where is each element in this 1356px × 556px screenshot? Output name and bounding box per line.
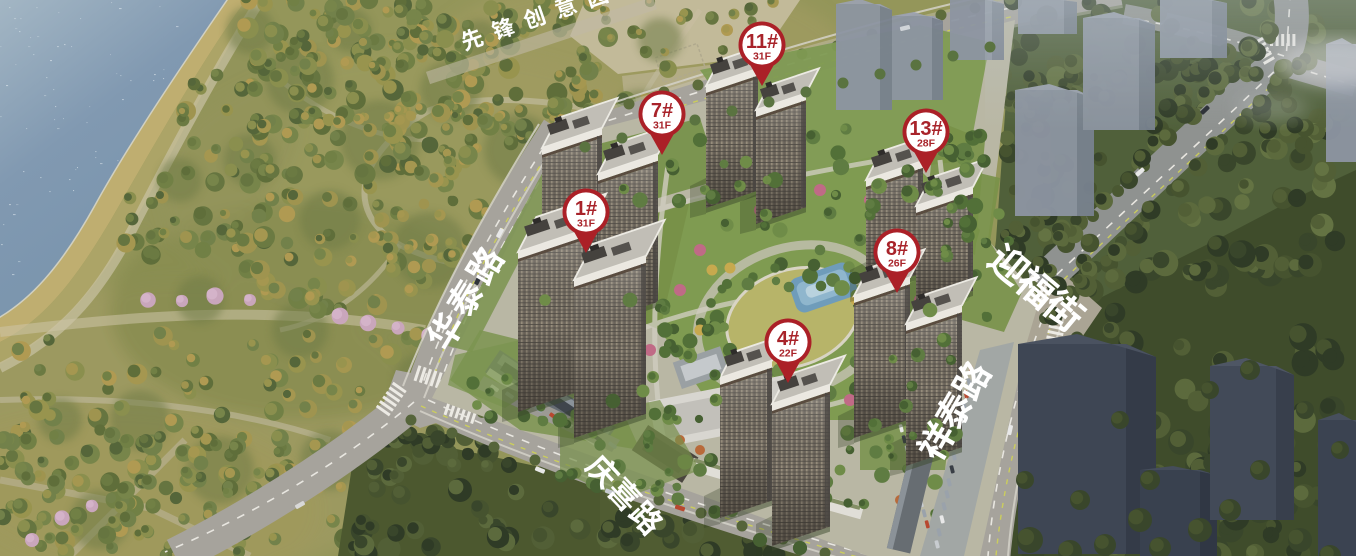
svg-text:26F: 26F <box>888 258 907 270</box>
svg-text:31F: 31F <box>753 51 772 63</box>
svg-text:31F: 31F <box>653 120 672 132</box>
svg-text:22F: 22F <box>779 348 798 360</box>
svg-text:31F: 31F <box>577 218 596 230</box>
svg-text:28F: 28F <box>917 138 936 150</box>
